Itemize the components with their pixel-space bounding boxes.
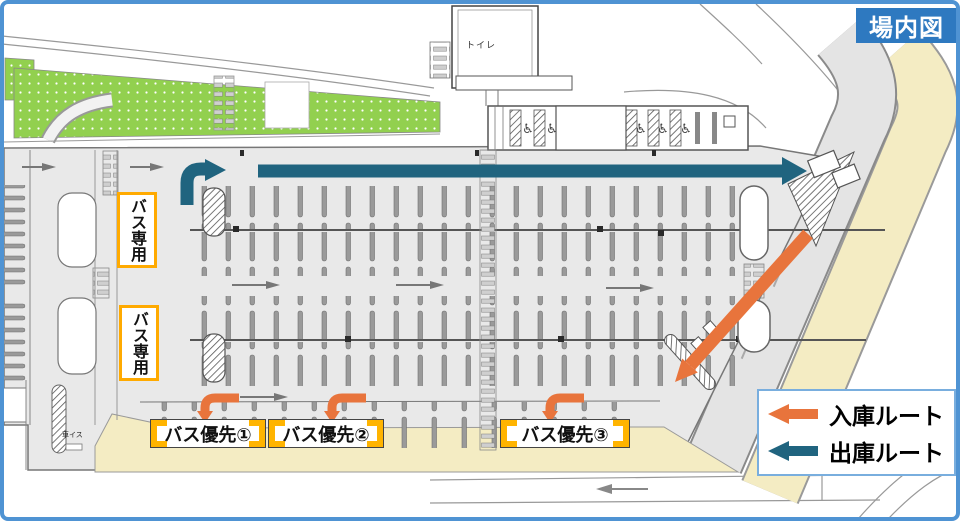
green-area: [4, 58, 440, 142]
legend-entry-label: 入庫ルート: [829, 397, 944, 431]
bus-priority-label-2: バス優先②: [268, 419, 384, 448]
toilet-label: トイレ: [466, 38, 496, 51]
legend-entry-exit-route: 出庫ルート: [767, 434, 946, 468]
pedestrian-walkway: [480, 150, 496, 450]
bus-priority-label-3: バス優先③: [500, 419, 630, 448]
bus-only-label-1: バス専用: [117, 192, 157, 268]
crosswalk: [103, 151, 118, 195]
entry-route-arrow-icon: [767, 402, 821, 426]
bus-bay: [58, 298, 96, 374]
wheelchair-icon: ♿: [522, 122, 534, 137]
route-legend: 入庫ルート 出庫ルート: [757, 389, 956, 476]
stairs: [430, 42, 450, 78]
exit-route-arrow-icon: [767, 439, 821, 463]
bus-priority-label-1: バス優先①: [150, 419, 266, 448]
accessible-parking-canopy: ♿ ♿ ♿ ♿ ♿: [488, 106, 748, 150]
buildings: ♿ ♿ ♿ ♿ ♿: [430, 6, 748, 150]
wheelchair-icon: ♿: [635, 122, 647, 137]
wheelchair-icon: ♿: [680, 122, 692, 137]
wheelchair-icon: ♿: [657, 122, 669, 137]
legend-entry-label: 出庫ルート: [829, 434, 944, 468]
bus-bay: [58, 193, 96, 267]
legend-entry-entry-route: 入庫ルート: [767, 397, 946, 431]
parking-site-map: ♿ ♿ ♿ ♿ ♿: [0, 0, 960, 521]
wheelchair-icon: ♿: [546, 122, 558, 137]
bus-only-label-2: バス専用: [119, 305, 159, 381]
map-title-badge: 場内図: [856, 8, 957, 43]
wheelchair-text-label: 車イス: [62, 430, 83, 440]
